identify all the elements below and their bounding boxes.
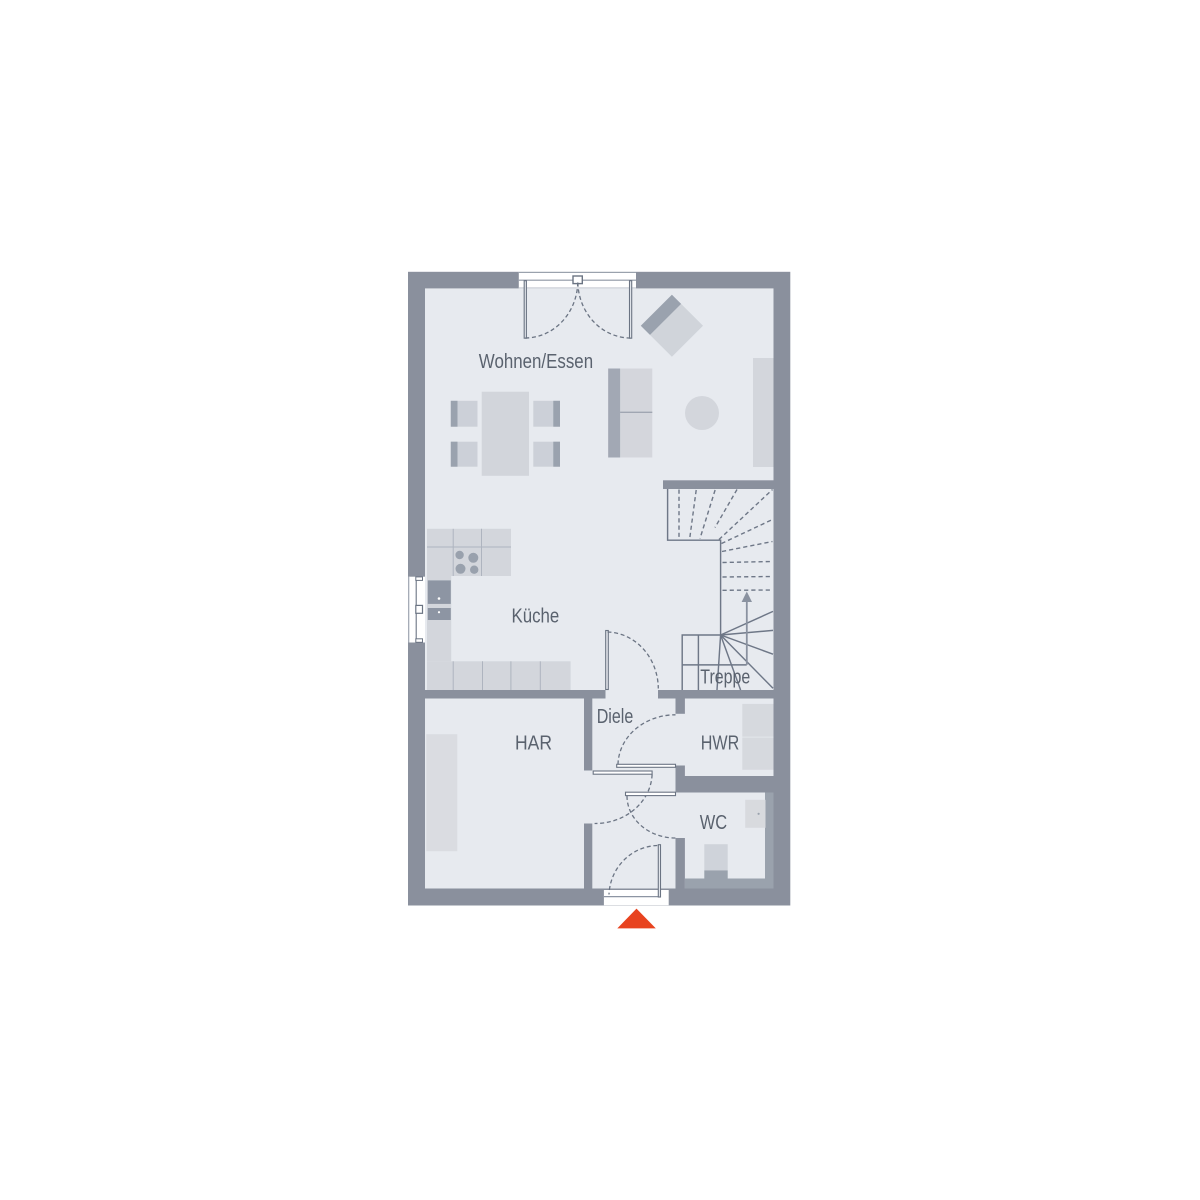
svg-text:Wohnen/Essen: Wohnen/Essen	[479, 350, 593, 373]
svg-text:HWR: HWR	[701, 731, 740, 754]
svg-text:WC: WC	[700, 811, 728, 834]
svg-text:Diele: Diele	[597, 705, 634, 728]
svg-text:Treppe: Treppe	[700, 665, 750, 688]
svg-text:HAR: HAR	[515, 731, 552, 754]
svg-text:Küche: Küche	[512, 605, 560, 628]
